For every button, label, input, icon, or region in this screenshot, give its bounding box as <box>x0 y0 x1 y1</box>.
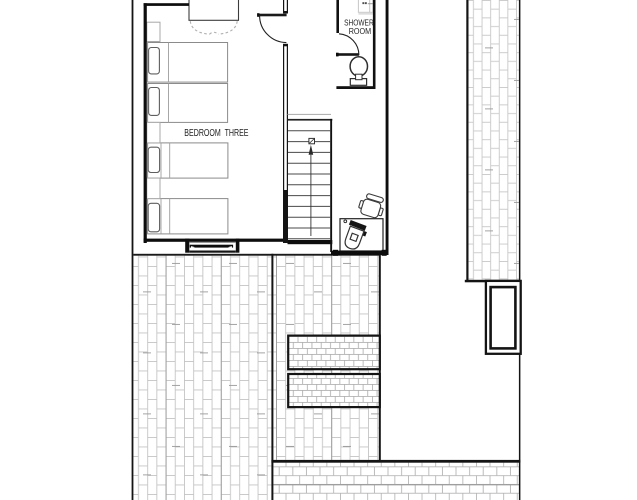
svg-text:ROOM: ROOM <box>349 26 371 36</box>
svg-text:BEDROOM THREE: BEDROOM THREE <box>184 128 248 139</box>
